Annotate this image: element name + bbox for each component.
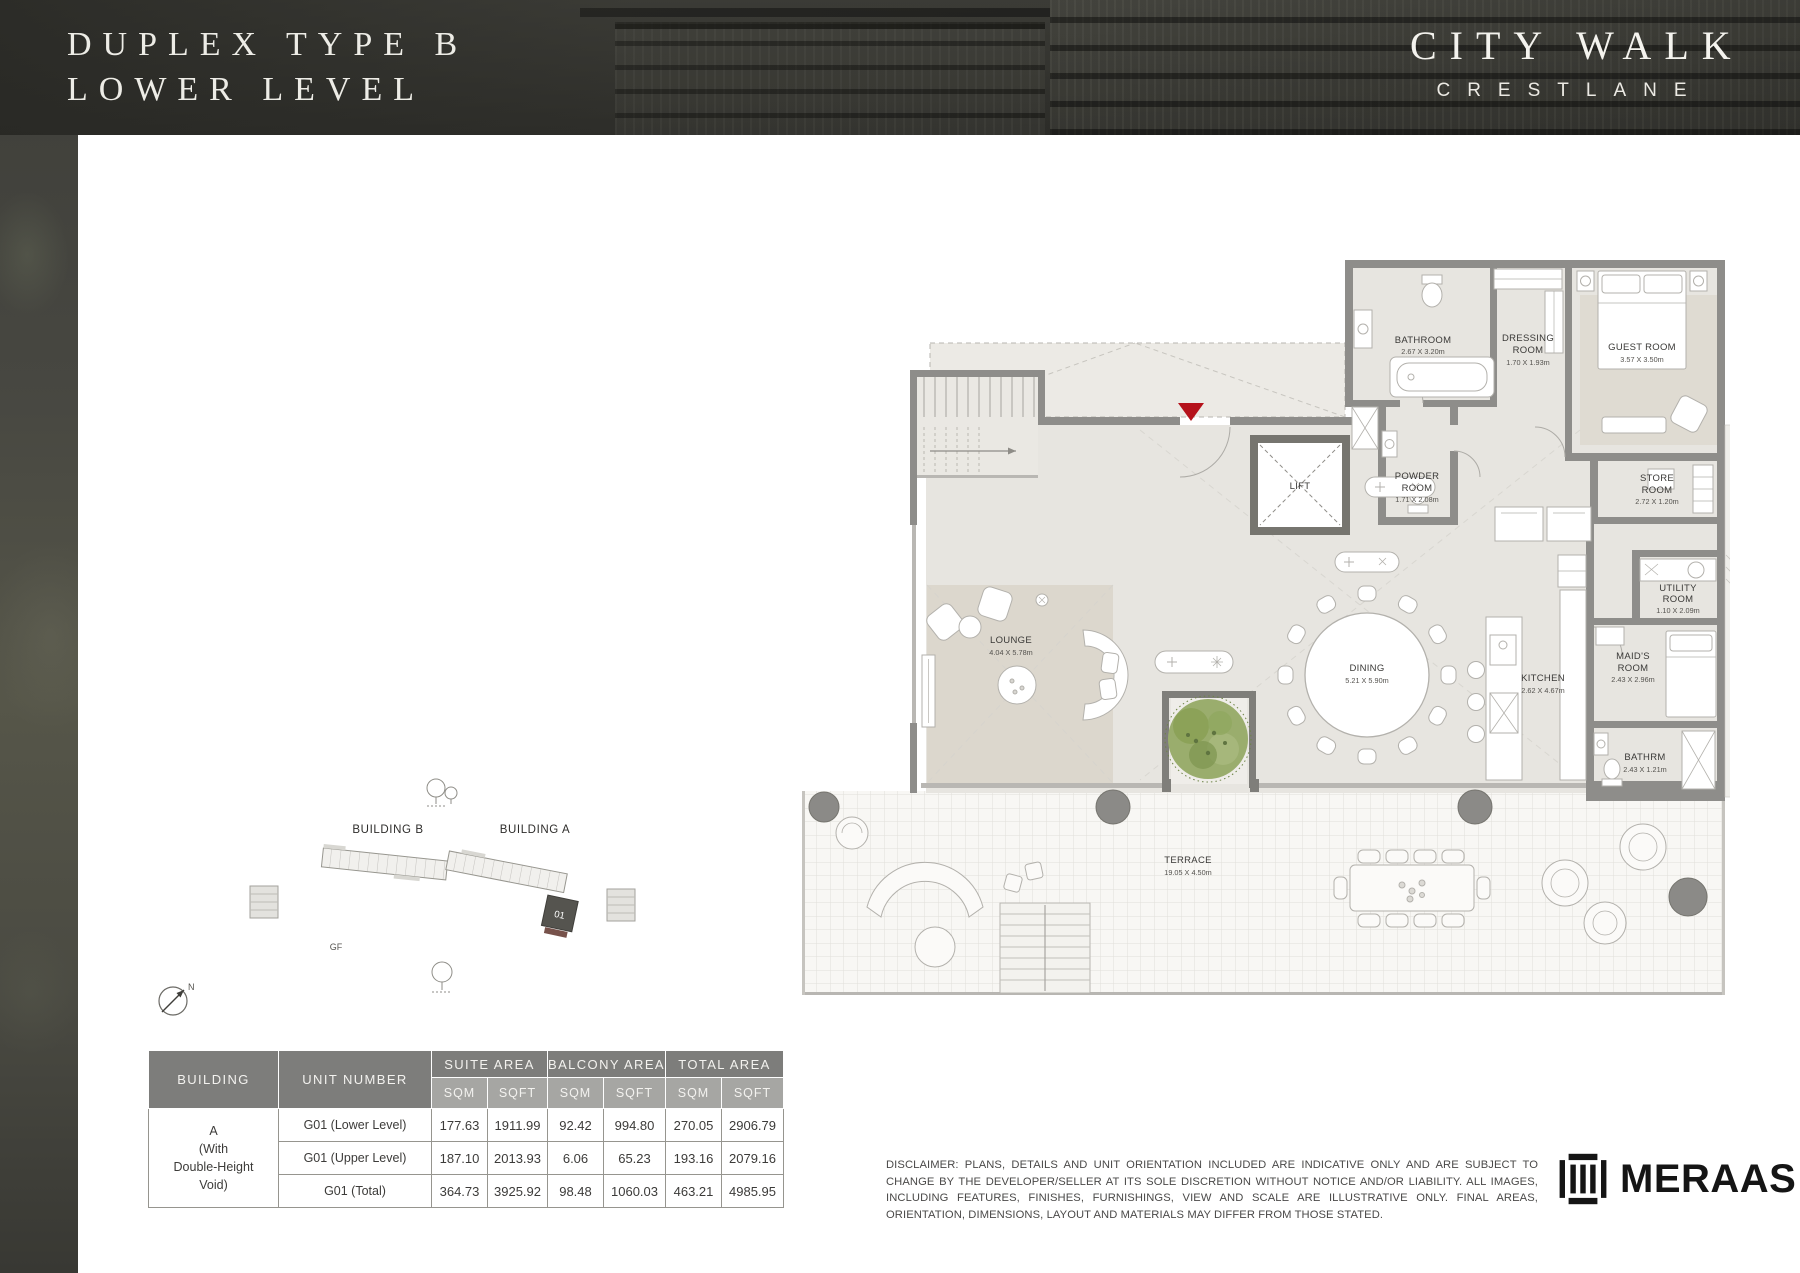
svg-text:STORE: STORE: [1640, 473, 1674, 484]
table-cell: 98.48: [548, 1175, 604, 1208]
tree-icon: [427, 779, 457, 806]
table-cell: 3925.92: [488, 1175, 548, 1208]
shower-icon: [1682, 731, 1715, 789]
col-header-suite-area: SUITE AREA: [432, 1051, 548, 1078]
coffee-table-icon: [998, 666, 1036, 704]
svg-text:1.70 X 1.93m: 1.70 X 1.93m: [1506, 358, 1549, 367]
brand-logo: CITY WALK CRESTLANE: [1410, 22, 1730, 102]
side-table-icon: [959, 616, 981, 638]
page-title-line2: LOWER LEVEL: [67, 67, 468, 112]
meraas-icon: [1556, 1152, 1610, 1206]
shower-icon: [1352, 407, 1378, 449]
left-photo-strip: [0, 0, 78, 1273]
compass-north-label: N: [188, 982, 195, 992]
toilet-icon: [1602, 759, 1622, 786]
svg-text:4.04 X 5.78m: 4.04 X 5.78m: [989, 648, 1032, 657]
room-label-store: STORE ROOM 2.72 X 1.20m: [1635, 473, 1678, 506]
sink-icon: [1594, 733, 1608, 755]
col-header-unit-number: UNIT NUMBER: [279, 1051, 432, 1109]
table-cell: 364.73: [432, 1175, 488, 1208]
svg-text:2.72 X 1.20m: 2.72 X 1.20m: [1635, 497, 1678, 506]
table-cell: 2906.79: [722, 1109, 784, 1142]
table-cell: 65.23: [604, 1142, 666, 1175]
table-cell: G01 (Lower Level): [279, 1109, 432, 1142]
service-ledge: [1725, 425, 1730, 797]
svg-text:3.57 X 3.50m: 3.57 X 3.50m: [1620, 355, 1663, 364]
table-cell: 6.06: [548, 1142, 604, 1175]
svg-text:2.62 X 4.67m: 2.62 X 4.67m: [1521, 686, 1564, 695]
brand-name: CITY WALK: [1410, 22, 1730, 69]
col-header-balcony-area: BALCONY AREA: [548, 1051, 666, 1078]
kitchen-island-icon: [1486, 617, 1522, 780]
round-table-icon: [915, 927, 955, 967]
bathtub-icon: [1390, 357, 1494, 397]
col-header-sqft: SQFT: [488, 1078, 548, 1109]
svg-text:2.67 X 3.20m: 2.67 X 3.20m: [1401, 347, 1444, 356]
svg-text:LIFT: LIFT: [1290, 481, 1311, 492]
building-b-label: BUILDING B: [352, 824, 423, 836]
floor-label: GF: [330, 942, 343, 952]
developer-name: MERAAS: [1620, 1157, 1796, 1202]
brochure-page: DUPLEX TYPE B LOWER LEVEL CITY WALK CRES…: [0, 0, 1800, 1273]
col-header-building: BUILDING: [149, 1051, 279, 1109]
floor-lamp-icon: [1036, 594, 1048, 606]
table-cell: 463.21: [666, 1175, 722, 1208]
building-a-label: BUILDING A: [500, 824, 571, 836]
svg-text:ROOM: ROOM: [1618, 663, 1649, 674]
page-title-line1: DUPLEX TYPE B: [67, 22, 468, 67]
col-header-sqm: SQM: [548, 1078, 604, 1109]
svg-text:BATHROOM: BATHROOM: [1395, 335, 1452, 346]
developer-logo: MERAAS: [1556, 1152, 1796, 1206]
svg-text:DRESSING: DRESSING: [1502, 333, 1554, 344]
bar-stool-icon: [1468, 662, 1485, 743]
building-locator-diagram: BUILDING B BUILDING A 01 GF: [140, 760, 660, 1030]
sink-icon: [1382, 431, 1397, 457]
svg-text:LOUNGE: LOUNGE: [990, 635, 1032, 646]
svg-text:MAID'S: MAID'S: [1616, 651, 1650, 662]
svg-text:DINING: DINING: [1349, 663, 1384, 674]
vanity-icon: [1354, 310, 1372, 348]
tree-icon: [432, 962, 452, 992]
svg-text:KITCHEN: KITCHEN: [1521, 673, 1565, 684]
highlighted-unit-01: 01: [540, 895, 578, 939]
mini-building-icon: [250, 886, 278, 918]
table-cell: 4985.95: [722, 1175, 784, 1208]
floor-plan: BATHROOM 2.67 X 3.20m DRESSING ROOM 1.70…: [790, 255, 1730, 1000]
room-label-maids: MAID'S ROOM 2.43 X 2.96m: [1611, 651, 1654, 684]
svg-text:BATHRM: BATHRM: [1624, 752, 1665, 763]
compass-icon: N: [159, 982, 195, 1015]
lounge-chair-icon: [836, 817, 868, 849]
svg-text:ROOM: ROOM: [1663, 594, 1694, 605]
table-cell: 2013.93: [488, 1142, 548, 1175]
svg-text:ROOM: ROOM: [1402, 483, 1433, 494]
bench-icon: [1602, 417, 1666, 433]
building-b-footprint: [321, 844, 448, 884]
building-a-footprint: [446, 847, 568, 892]
washer-icon: [1640, 559, 1716, 581]
col-header-sqft: SQFT: [722, 1078, 784, 1109]
table-cell: 187.10: [432, 1142, 488, 1175]
console-icon: [1495, 507, 1591, 541]
wardrobe-icon: [1596, 627, 1624, 645]
room-label-lift: LIFT: [1290, 481, 1311, 492]
svg-text:GUEST ROOM: GUEST ROOM: [1608, 342, 1676, 353]
col-header-sqft: SQFT: [604, 1078, 666, 1109]
table-cell: 177.63: [432, 1109, 488, 1142]
terrace-stairs-icon: [1000, 903, 1090, 993]
room-label-bathroom: BATHROOM 2.67 X 3.20m: [1395, 335, 1452, 356]
table-cell: 994.80: [604, 1109, 666, 1142]
svg-text:ROOM: ROOM: [1642, 485, 1673, 496]
disclaimer-text: DISCLAIMER: PLANS, DETAILS AND UNIT ORIE…: [886, 1157, 1538, 1223]
table-cell: 92.42: [548, 1109, 604, 1142]
area-table: BUILDING UNIT NUMBER SUITE AREA BALCONY …: [148, 1050, 784, 1208]
table-cell: G01 (Total): [279, 1175, 432, 1208]
col-header-sqm: SQM: [666, 1078, 722, 1109]
toilet-icon: [1422, 275, 1442, 307]
tv-console-icon: [922, 655, 935, 727]
col-header-total-area: TOTAL AREA: [666, 1051, 784, 1078]
table-cell: 1060.03: [604, 1175, 666, 1208]
svg-text:2.43 X 1.21m: 2.43 X 1.21m: [1623, 765, 1666, 774]
room-label-utility: UTILITY ROOM 1.10 X 2.09m: [1656, 583, 1699, 615]
table-cell: 1911.99: [488, 1109, 548, 1142]
table-row: A (With Double-Height Void) G01 (Lower L…: [149, 1109, 784, 1142]
svg-text:TERRACE: TERRACE: [1164, 855, 1212, 866]
svg-text:5.21 X 5.90m: 5.21 X 5.90m: [1345, 676, 1388, 685]
table-cell: 2079.16: [722, 1142, 784, 1175]
svg-text:2.43 X 2.96m: 2.43 X 2.96m: [1611, 675, 1654, 684]
unit-01-label: 01: [553, 909, 566, 922]
svg-text:1.10 X 2.09m: 1.10 X 2.09m: [1656, 606, 1699, 615]
col-header-sqm: SQM: [432, 1078, 488, 1109]
svg-text:19.05 X 4.50m: 19.05 X 4.50m: [1164, 868, 1211, 877]
page-title: DUPLEX TYPE B LOWER LEVEL: [67, 22, 468, 112]
svg-text:POWDER: POWDER: [1395, 471, 1440, 482]
table-cell: 270.05: [666, 1109, 722, 1142]
mini-building-icon: [607, 889, 635, 921]
stairs-icon: [917, 377, 1038, 478]
svg-text:1.71 X 2.08m: 1.71 X 2.08m: [1395, 495, 1438, 504]
svg-text:UTILITY: UTILITY: [1659, 583, 1697, 594]
table-cell: G01 (Upper Level): [279, 1142, 432, 1175]
bed-icon: [1666, 631, 1716, 717]
table-cell: 193.16: [666, 1142, 722, 1175]
svg-text:ROOM: ROOM: [1513, 345, 1544, 356]
building-cell: A (With Double-Height Void): [149, 1109, 279, 1208]
brand-subname: CRESTLANE: [1410, 80, 1730, 102]
